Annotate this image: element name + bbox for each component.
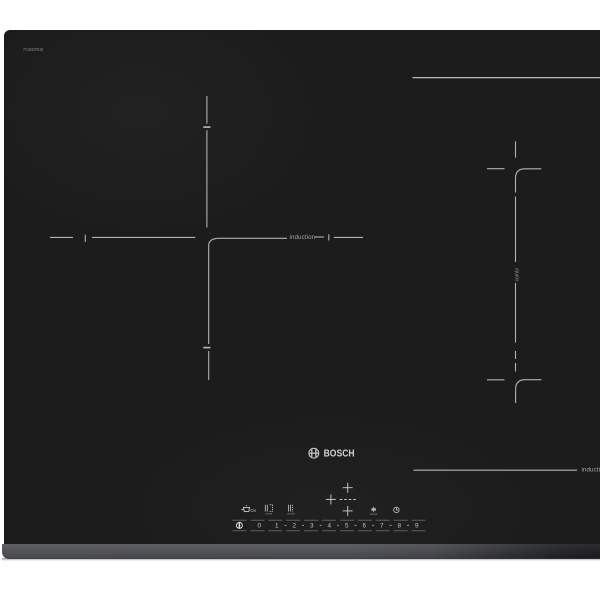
svg-text:combi: combi [287,512,295,516]
svg-text:move: move [265,512,273,516]
svg-text:0: 0 [258,523,262,530]
svg-text:3: 3 [310,523,314,530]
svg-text:2: 2 [293,523,297,530]
svg-text:induction: induction [290,234,316,241]
svg-text:8: 8 [398,523,402,530]
svg-text:1: 1 [275,523,279,530]
svg-text:BOSCH: BOSCH [324,449,355,460]
svg-text:boost: boost [370,512,378,516]
svg-text:7: 7 [380,523,384,530]
svg-text:9: 9 [415,523,419,530]
svg-text:On: On [250,508,256,513]
svg-text:5: 5 [345,523,349,530]
svg-text:6: 6 [363,523,367,530]
svg-text:4: 4 [328,523,332,530]
svg-text:PVJ631FB1E: PVJ631FB1E [24,47,44,52]
svg-text:induction: induction [582,467,600,474]
svg-text:combi: combi [515,268,521,281]
